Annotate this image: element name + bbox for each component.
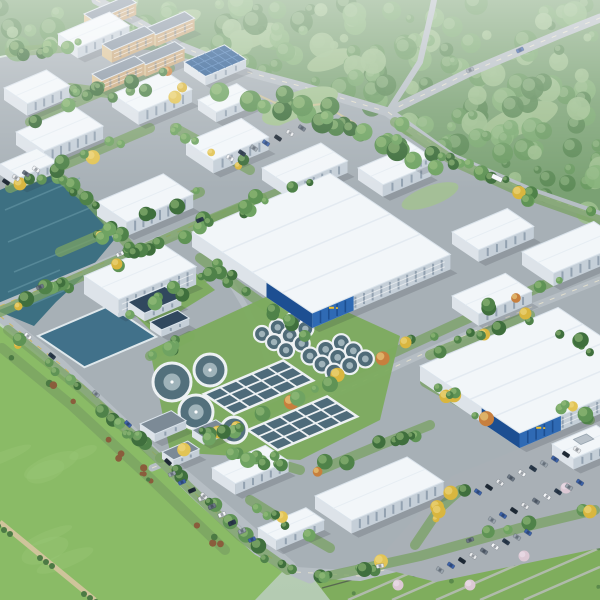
- facade-logo: [329, 307, 334, 309]
- haze-overlay: [0, 0, 600, 190]
- rendered-scene: [0, 0, 600, 600]
- aerial-industrial-park-rendering: [0, 0, 600, 600]
- facade-logo: [536, 427, 541, 429]
